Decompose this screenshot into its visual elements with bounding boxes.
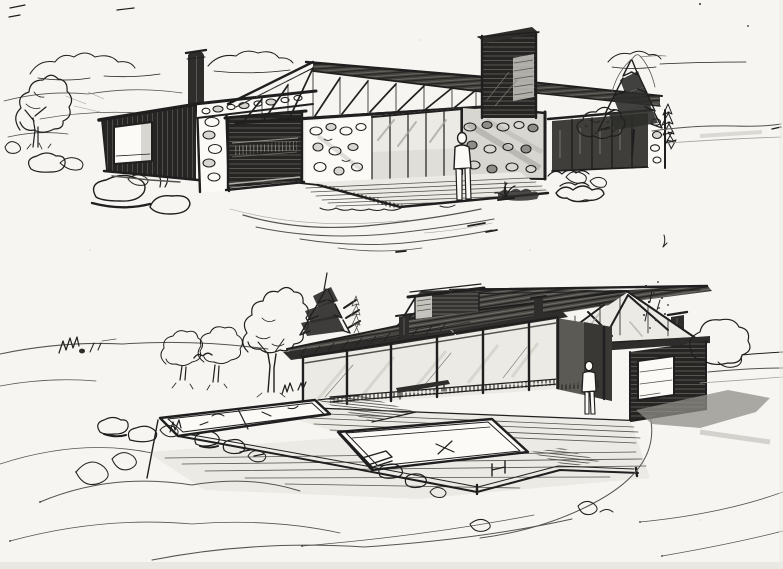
architectural-sketch-image bbox=[0, 0, 783, 569]
chimney bbox=[186, 50, 206, 110]
fireplace-tower bbox=[478, 27, 539, 118]
picture-window bbox=[114, 122, 152, 164]
window-opening bbox=[638, 356, 674, 400]
glazed-doors bbox=[372, 108, 462, 181]
stone-wall bbox=[306, 116, 372, 188]
sketch-page bbox=[0, 0, 783, 569]
